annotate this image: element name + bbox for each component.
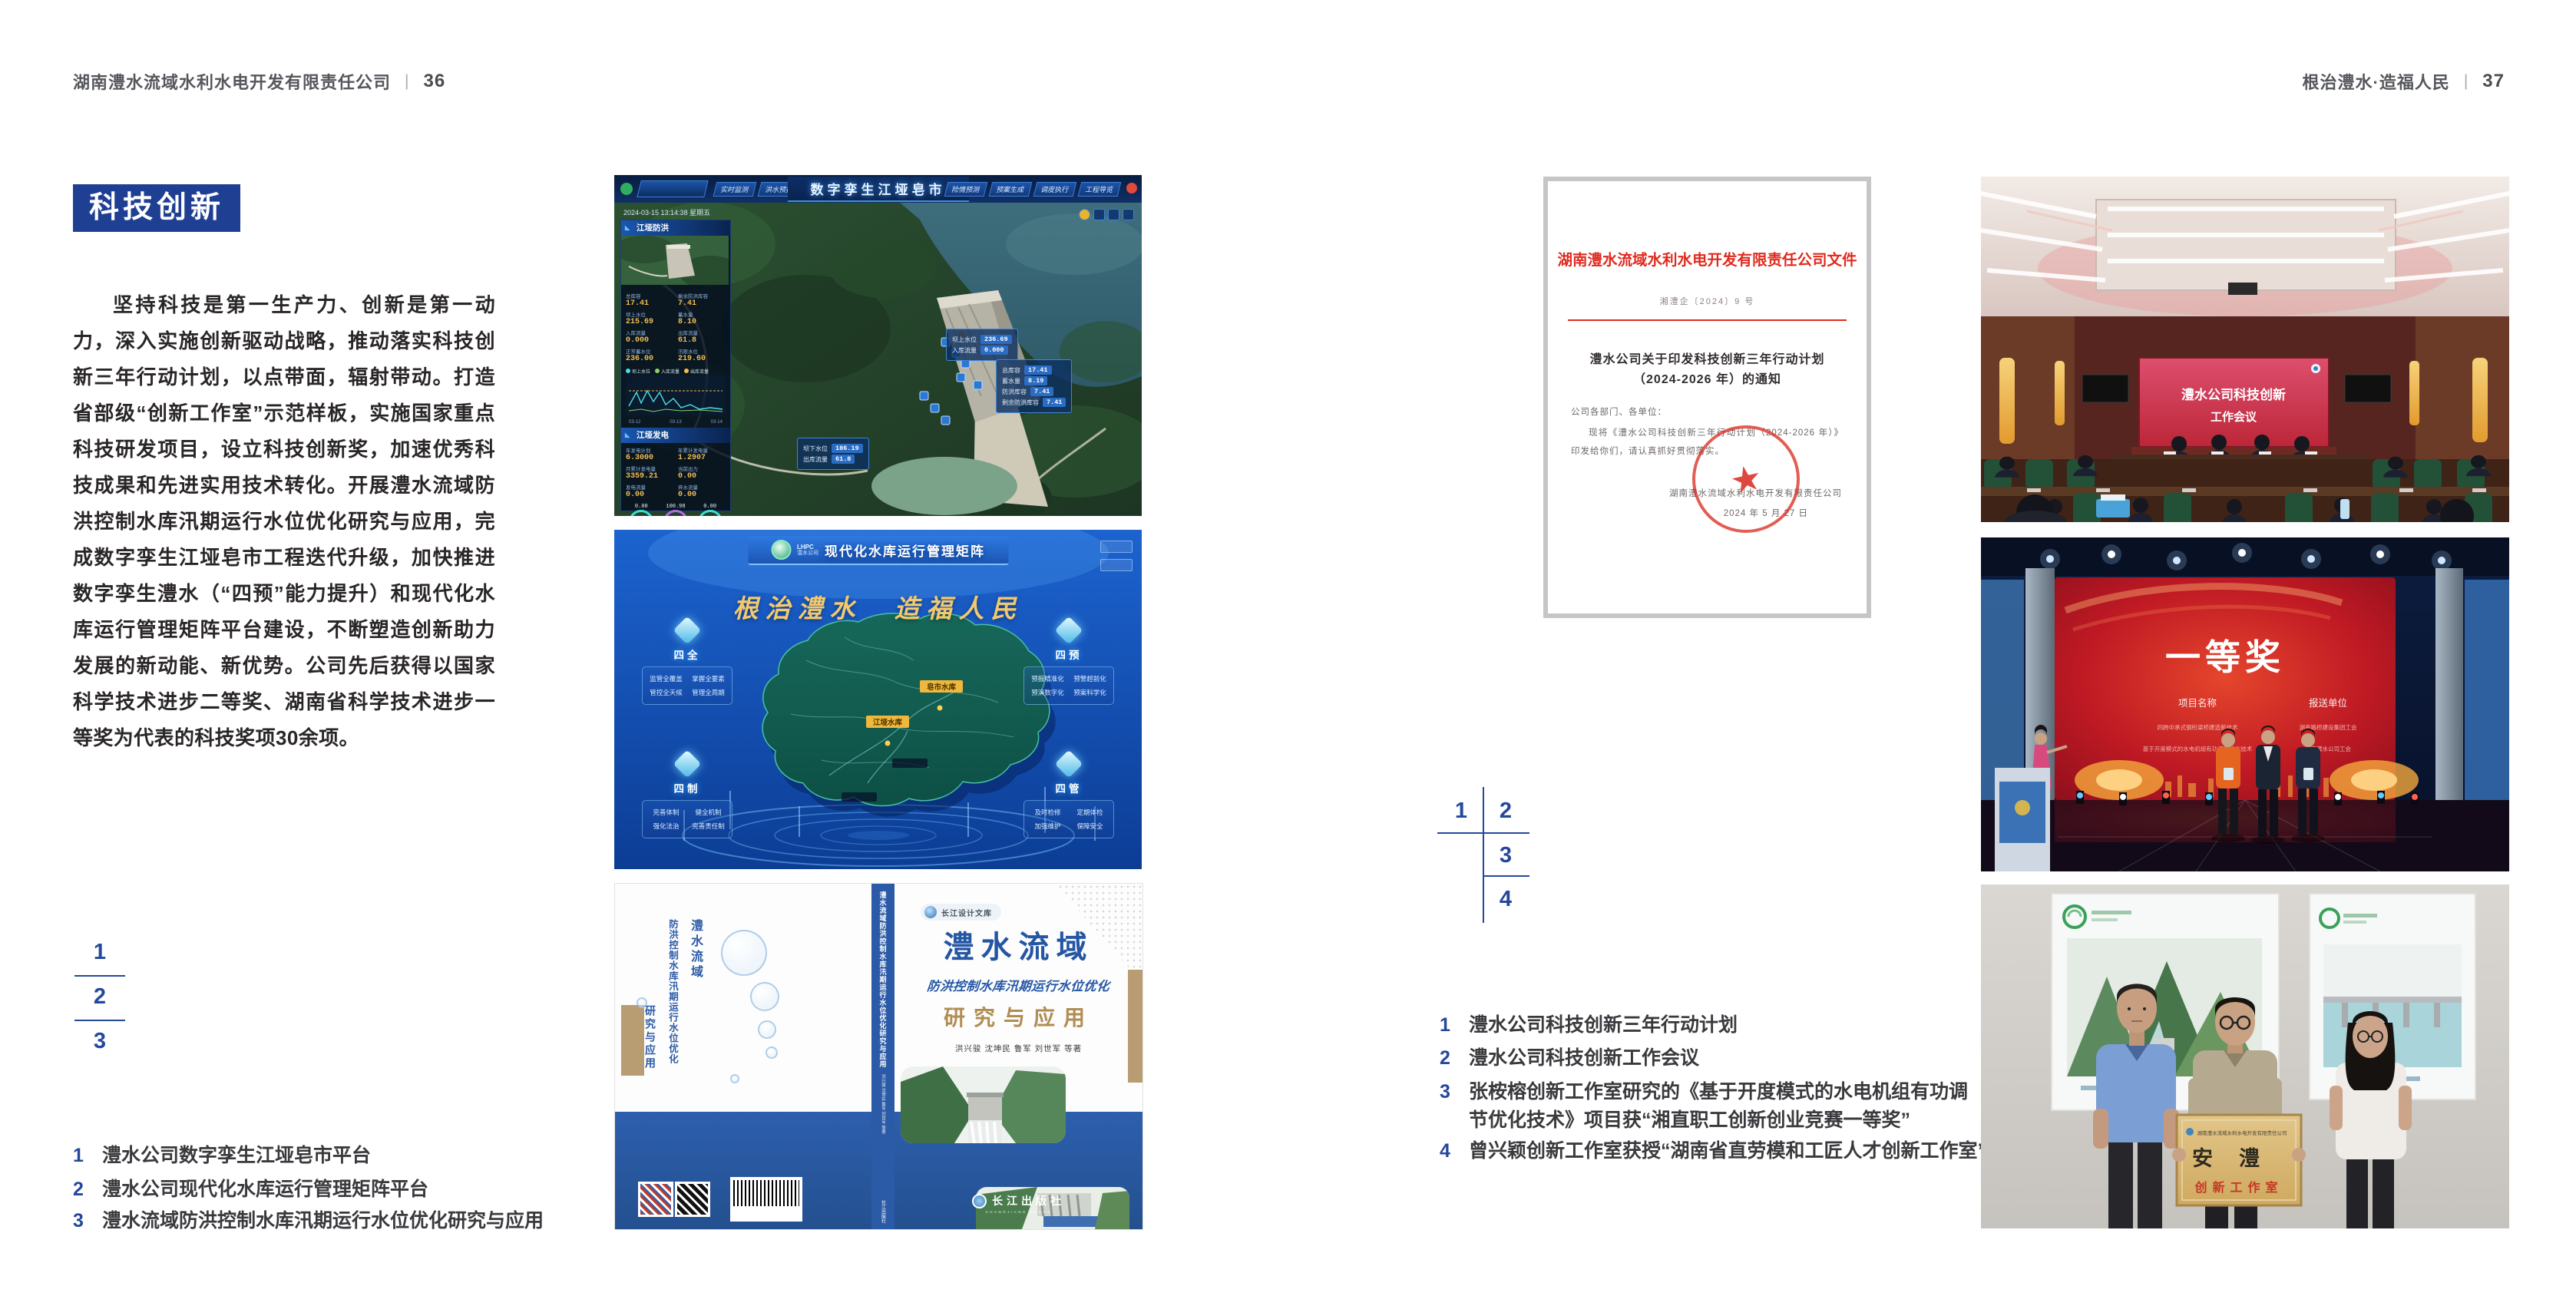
innovation-plaque: 湖南澧水流域水利水电开发有限责任公司 安澧 创新工作室 [2172,1115,2306,1205]
gauge-icon [698,510,723,516]
caption-row: 1 澧水公司科技创新三年行动计划 [1440,1012,1738,1038]
dashboard-title: 数字孪生江垭皂市 [788,177,969,202]
stat-label: 剩余防洪库容 [678,292,726,299]
caption-number: 4 [1440,1138,1457,1164]
stat-label: 正常蓄水位 [626,347,673,355]
caption-number: 2 [1440,1045,1457,1071]
panel-icon [673,617,702,645]
spine-title: 澧水流域防洪控制水库汛期运行水位优化研究与应用 [878,891,888,1068]
wall-tv [2345,375,2391,402]
caption-text: 澧水公司科技创新三年行动计划 [1469,1012,1738,1038]
matrix-title-bar: LHPC 澧水公司 现代化水库运行管理矩阵 [748,536,1008,565]
map-tag-zaoshi: 皂市水库 [920,680,963,693]
tab-project-tour[interactable]: 工程导览 [1078,182,1122,197]
station-tag [842,792,877,802]
caption-row: 3 张桉榕创新工作室研究的《基于开度模式的水电机组有功调节优化技术》项目获“湘直… [1440,1078,1969,1135]
header-separator: | [405,72,409,91]
figure-number-divider [74,975,125,977]
holding-hand [2292,1148,2306,1162]
panel-sizhi: 四制 完善体制健全机制 强化法治完善责任制 [642,754,732,838]
tab-plan-generate[interactable]: 预案生成 [989,182,1033,197]
publisher-block: 长江出版社 CHANGJIANG PRESS [894,1193,1143,1214]
publisher-name: 长江出版社 [992,1193,1065,1208]
stat-value: 215.69 [626,318,673,326]
panel-title: 四全 [642,646,732,662]
panel-title: 四管 [1023,780,1114,795]
stat-label: 蓄水量 [678,310,726,318]
series-logo-icon [924,906,937,918]
header-separator: | [2464,72,2469,91]
page-number-right: 37 [2482,71,2505,92]
panel-icon [1055,750,1083,779]
figure-matrix-platform: 皂市水库 江垭水库 LHPC 澧水公司 现代化水库运行管理矩阵 根治澧水 造福人… [614,530,1142,869]
bubble-decoration [721,930,767,976]
front-cover: 澧水流域 防洪控制水库汛期运行水位优化 研究与应用 洪兴骏 沈坤民 鲁军 刘世军… [894,884,1143,1229]
screen-title-line1: 澧水公司科技创新 [2181,387,2286,402]
stat-value: 3359.21 [626,472,673,481]
plaque-type: 创新工作室 [2194,1180,2283,1195]
layers-icon[interactable] [1093,209,1105,220]
caption-number: 3 [73,1208,90,1234]
award-title: 一等奖 [2165,637,2285,677]
stat-label: 入库流量 [626,329,673,336]
stat-label: 发电流量 [626,483,673,491]
plaque-company-line: 湖南澧水流域水利水电开发有限责任公司 [2197,1129,2287,1136]
header-slogan: 根治澧水·造福人民 [2303,69,2450,94]
document-red-rule [1568,319,1847,321]
float-box-capacity: 总库容17.41 蓄水量8.19 防洪库容7.41 剩余防洪库容7.41 [996,359,1072,413]
stat-value: 7.41 [678,299,726,308]
figure-award-ceremony-photo: 一等奖 项目名称 报送单位 四跨中承式钢桁梁桥建造新技术 基于开度模式的水电机组… [1981,537,2509,871]
bubble-decoration [766,1046,778,1059]
figure-digital-twin-platform: 实时监测 洪水预报 防洪预警 数字孪生江垭皂市 险情预测 预案生成 调度执行 工… [614,175,1142,516]
panel-header-power: 江垭发电 [621,428,730,443]
stat-label: 月累计发电量 [626,465,673,472]
reservoir-dot [937,706,943,711]
left-data-panel: 江垭防洪 总库容17.41 剩余防洪库容7.41 坝上水位215.69 蓄水量8… [620,220,731,511]
caption-row: 3 澧水流域防洪控制水库汛期运行水位优化研究与应用 [73,1208,544,1234]
dam-thumbnail [621,236,729,285]
caption-row: 1 澧水公司数字孪生江垭皂市平台 [73,1142,371,1169]
caption-row: 2 澧水公司科技创新工作会议 [1440,1045,1699,1071]
svg-text:江垭水库: 江垭水库 [873,718,903,727]
float-box-upstream: 坝上水位236.69 入库流量0.000 [946,329,1018,361]
panel-siguan: 四管 及时检修定期体检 加强维护保障安全 [1023,754,1114,838]
slogan-calligraphy: 根治澧水 造福人民 [614,588,1142,625]
barcode [730,1177,802,1222]
caption-row: 4 曾兴颖创新工作室获授“湖南省直劳模和工匠人才创新工作室” [1440,1138,1987,1164]
station-tag [892,759,928,768]
tab-realtime-monitor[interactable]: 实时监测 [713,182,757,197]
map-tag-jiangya: 江垭水库 [866,716,909,728]
document-red-header: 湖南澧水流域水利水电开发有限责任公司文件 [1548,247,1867,269]
stat-value: 8.10 [678,318,726,326]
datetime-display: 2024-03-15 13:14:38 星期五 [623,207,710,217]
stat-value: 0.00 [678,472,726,481]
holding-hand [2172,1148,2186,1162]
company-logo-icon [771,540,791,560]
caption-number: 1 [1440,1012,1457,1038]
svg-text:皂市水库: 皂市水库 [927,683,957,692]
wall-tv [2082,375,2128,402]
document-salutation: 公司各部门、各单位： [1571,405,1667,418]
header-left: 湖南澧水流域水利水电开发有限责任公司 | 36 [73,69,445,94]
locate-icon[interactable] [1108,209,1119,220]
caption-text: 曾兴颖创新工作室获授“湖南省直劳模和工匠人才创新工作室” [1469,1138,1987,1164]
figure-number-divider [74,1020,125,1021]
brochure-spread: 湖南澧水流域水利水电开发有限责任公司 | 36 根治澧水·造福人民 | 37 科… [0,0,2576,1306]
meeting-screen: 澧水公司科技创新 工作会议 [2139,358,2329,447]
series-name: 长江设计文库 [941,907,992,918]
stat-value: 1.2907 [678,454,726,462]
stat-label: 年累计发电量 [678,446,726,454]
book-title-sub: 防洪控制水库汛期运行水位优化 [894,976,1143,994]
chart-legend: 坝上水位 入库流量 出库流量 [621,366,730,375]
back-title-tail: 研究与应用 [643,1005,658,1070]
chart-ticks: 03-1203-1303-14 [621,420,730,425]
spine-publisher: 长江出版社 [880,1200,887,1223]
award-col2: 报送单位 [2309,697,2347,709]
publisher-logo-icon [972,1194,987,1208]
panel-siquan: 四全 监管全覆盖掌握全要素 管控全天候管理全周期 [642,620,732,705]
stat-value: 0.00 [678,491,726,499]
stat-label: 坝上水位 [626,310,673,318]
spine-authors: 洪兴骏 沈坤民 鲁军 刘世军 等著 [880,1074,886,1134]
caption-text: 澧水流域防洪控制水库汛期运行水位优化研究与应用 [102,1208,544,1234]
panel-header-flood: 江垭防洪 [621,220,730,236]
stat-label: 弃水流量 [678,483,726,491]
meeting-scene: 澧水公司科技创新 工作会议 [1981,177,2509,522]
projector [2228,283,2257,295]
caption-number: 1 [73,1142,90,1169]
stat-value: 0.00 [626,491,673,499]
back-title-sub: 防洪控制水库汛期运行水位优化 [666,919,680,1064]
bubble-decoration [750,982,779,1011]
bubble-decoration [758,1020,776,1039]
plaque-logo-icon [2186,1128,2194,1136]
caption-text: 澧水公司科技创新工作会议 [1469,1045,1699,1071]
gauge-icon [663,510,688,516]
body-paragraph: 坚持科技是第一生产力、创新是第一动力，深入实施创新驱动战略，推动落实科技创新三年… [73,287,495,756]
reservoir-dot [885,741,891,746]
caption-text: 张桉榕创新工作室研究的《基于开度模式的水电机组有功调节优化技术》项目获“湘直职工… [1469,1078,1968,1135]
tailwater-pond [871,457,1017,515]
app-logo-icon [620,183,633,195]
document-number: 湘澧企〔2024〕9 号 [1548,295,1867,307]
close-button[interactable] [1100,541,1133,553]
float-box-downstream: 坝下水位186.19 出库流量61.8 [797,438,869,470]
tab-dispatch-execute[interactable]: 调度执行 [1033,182,1077,197]
document-title-line2: （2024-2026 年）的通知 [1548,369,1867,387]
back-title-main: 澧水流域 [686,919,704,980]
caption-number: 2 [73,1176,90,1202]
caption-text: 澧水公司现代化水库运行管理矩阵平台 [102,1176,428,1202]
module-plate [637,180,708,197]
bubble-decoration [730,1074,739,1083]
side-screen-right [2465,580,2509,810]
alert-icon [1126,183,1137,193]
qr-code [675,1182,710,1217]
screen-title-line2: 工作会议 [2211,410,2257,424]
figure-number: 1 [73,940,127,965]
workshop-scene: 湖南澧水流域水利水电开发有限责任公司 安澧 创新工作室 [1981,884,2509,1228]
figure-meeting-photo: 澧水公司科技创新 工作会议 [1981,177,2509,522]
menu-button[interactable] [1100,559,1133,571]
caption-text: 澧水公司数字孪生江垭皂市平台 [102,1142,371,1169]
panel-title: 四预 [1023,646,1114,662]
award-scene: 一等奖 项目名称 报送单位 四跨中承式钢桁梁桥建造新技术 基于开度模式的水电机组… [1981,537,2509,871]
logo-abbr: LHPC [797,544,818,551]
stat-label: 年发电计划 [626,446,673,454]
stat-value: 6.3000 [626,454,673,462]
stat-label: 当前出力 [678,465,726,472]
stat-label: 总库容 [626,292,673,299]
figure-number: 2 [73,984,127,1010]
book-title-tail: 研究与应用 [894,1001,1143,1032]
header-company-name: 湖南澧水流域水利水电开发有限责任公司 [73,69,391,94]
stage-pillar-right [2435,568,2463,837]
stat-value: 0.000 [626,336,673,345]
header-right: 根治澧水·造福人民 | 37 [2303,69,2505,94]
stat-label: 汛限水位 [678,347,726,355]
matrix-title: 现代化水库运行管理矩阵 [825,541,985,560]
caption-row: 2 澧水公司现代化水库运行管理矩阵平台 [73,1176,428,1202]
tab-risk-forecast[interactable]: 险情预测 [944,182,988,197]
document-title-line1: 澧水公司关于印发科技创新三年行动计划 [1548,349,1867,367]
panel-siyu: 四预 预报精准化预警超前化 预演数字化预案科学化 [1023,620,1114,705]
back-tan-block [621,1005,644,1076]
figure-number: 3 [1479,843,1533,868]
seal-star-icon: ★ [1726,455,1766,502]
stat-value: 17.41 [626,299,673,308]
figure-workshop-plaque-photo: 湖南澧水流域水利水电开发有限责任公司 安澧 创新工作室 [1981,884,2509,1228]
figure-number: 3 [73,1029,127,1054]
book-spine: 澧水流域防洪控制水库汛期运行水位优化研究与应用 洪兴骏 沈坤民 鲁军 刘世军 等… [871,884,894,1229]
stat-value: 219.60 [678,355,726,363]
figure-number: 4 [1479,887,1533,912]
cover-photo-valley-dam [901,1066,1066,1143]
gauge-icon [629,510,653,516]
figure-number-divider [1483,875,1529,877]
caption-number: 3 [1440,1078,1457,1135]
stat-label: 出库流量 [678,329,726,336]
toolbar-icons [1076,209,1134,220]
page-number-left: 36 [423,71,445,92]
figure-book-cover: 澧水流域 防洪控制水库汛期运行水位优化 研究与应用 澧水流域防洪控制水库汛期运行… [614,883,1143,1230]
figure-number: 2 [1479,798,1533,824]
panel-title: 四制 [642,780,732,795]
stat-value: 61.8 [678,336,726,345]
logo-name: 澧水公司 [797,551,818,557]
plaque-name: 安澧 [2192,1147,2286,1171]
user-icon[interactable] [1079,209,1090,220]
series-badge: 长江设计文库 [921,904,1001,921]
figure-number-divider [1437,832,1529,834]
watershed-map: 皂市水库 江垭水库 [762,613,1056,817]
award-col1: 项目名称 [2178,697,2217,709]
flood-stats-grid: 总库容17.41 剩余防洪库容7.41 坝上水位215.69 蓄水量8.10 入… [621,289,730,366]
qr-code [638,1182,673,1217]
stat-value: 236.00 [626,355,673,363]
book-authors: 洪兴骏 沈坤民 鲁军 刘世军 等著 [894,1043,1143,1054]
figure-official-document: 湖南澧水流域水利水电开发有限责任公司文件 湘澧企〔2024〕9 号 澧水公司关于… [1543,177,1871,618]
dashboard-top-bar: 实时监测 洪水预报 防洪预警 数字孪生江垭皂市 险情预测 预案生成 调度执行 工… [614,175,1142,203]
unit-gauges: 0.00 100.98 0.00 [621,502,730,516]
panel-icon [673,750,702,779]
panel-icon [1055,617,1083,645]
water-level-chart [626,375,726,415]
power-stats-grid: 年发电计划6.3000 年累计发电量1.2907 月累计发电量3359.21 当… [621,443,730,502]
figure-number-divider-vertical [1483,787,1484,923]
settings-icon[interactable] [1123,209,1134,220]
publisher-latin: CHANGJIANG PRESS [985,1210,1051,1214]
section-title: 科技创新 [73,184,240,232]
